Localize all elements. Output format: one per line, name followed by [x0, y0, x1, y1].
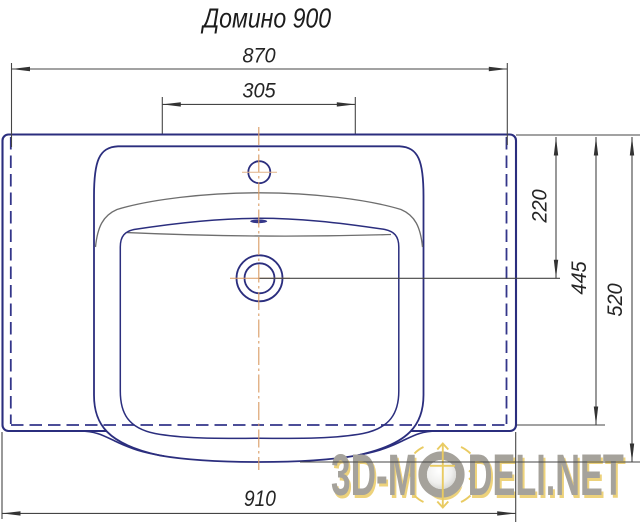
svg-text:DELI.NET: DELI.NET — [468, 443, 624, 508]
svg-text:910: 910 — [244, 487, 276, 512]
svg-text:Домино 900: Домино 900 — [200, 4, 331, 34]
svg-text:870: 870 — [242, 44, 276, 68]
svg-text:445: 445 — [567, 261, 591, 295]
svg-text:3D-M: 3D-M — [331, 443, 417, 508]
svg-text:305: 305 — [242, 79, 276, 103]
svg-text:220: 220 — [528, 189, 552, 224]
svg-text:520: 520 — [603, 283, 627, 317]
